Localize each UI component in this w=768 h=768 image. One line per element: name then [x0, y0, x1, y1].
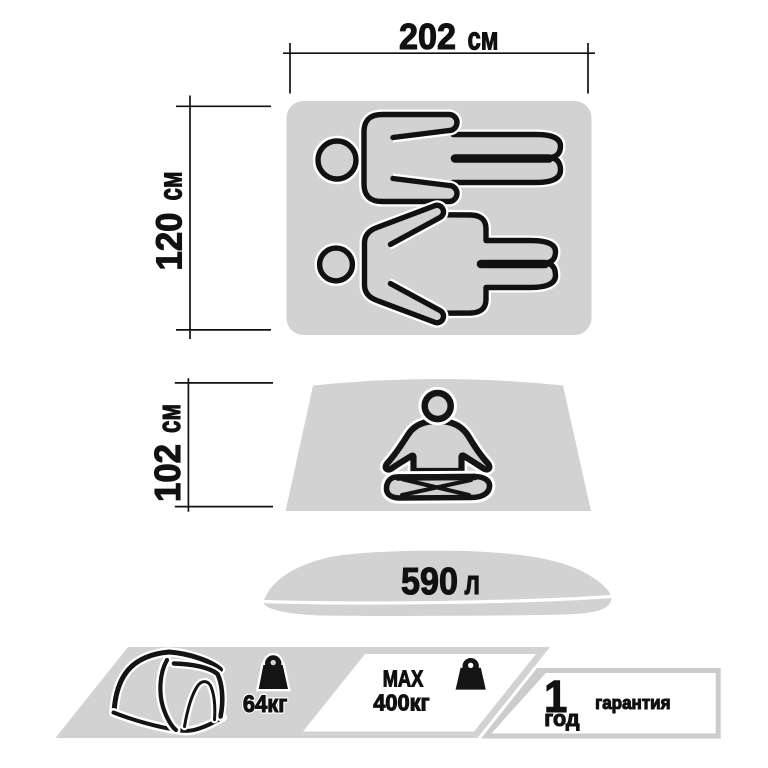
svg-text:120: 120	[149, 213, 190, 271]
svg-text:см: см	[468, 21, 499, 57]
svg-text:гарантия: гарантия	[595, 692, 671, 713]
svg-text:102: 102	[147, 444, 188, 502]
svg-text:MAX: MAX	[383, 666, 424, 692]
svg-text:400кг: 400кг	[373, 689, 429, 715]
svg-text:см: см	[153, 172, 189, 201]
svg-text:64кг: 64кг	[243, 691, 288, 718]
svg-text:год: год	[544, 706, 579, 731]
svg-text:см: см	[151, 404, 187, 433]
svg-text:л: л	[465, 564, 481, 602]
svg-text:590: 590	[401, 561, 458, 603]
svg-text:202: 202	[399, 16, 456, 57]
